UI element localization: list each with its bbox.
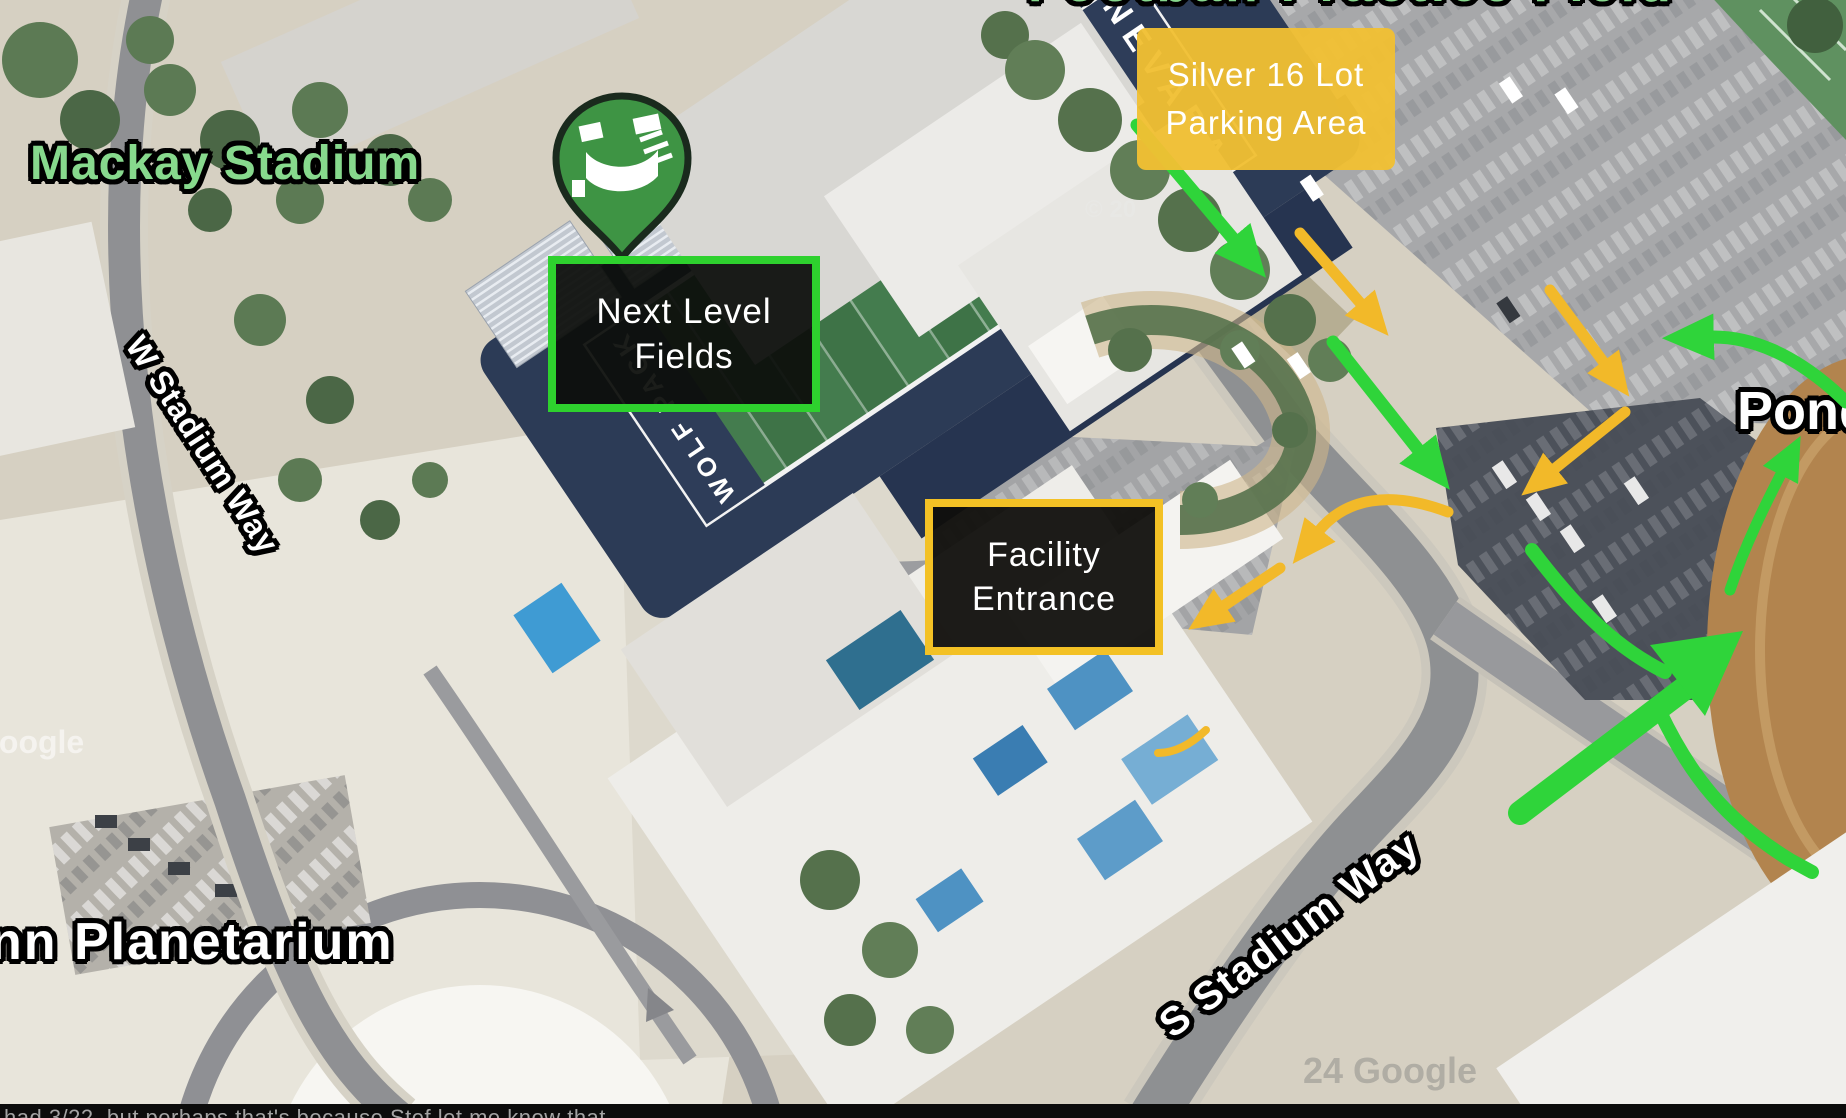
callout-line: Entrance — [972, 577, 1116, 621]
green-curve-join — [1532, 550, 1665, 672]
green-arrow-into-lot — [1710, 337, 1846, 402]
copyright-watermark-bottom: 24 Google — [1303, 1050, 1477, 1092]
green-arrow-big-shaft — [1520, 688, 1685, 813]
next-level-fields-callout: Next Level Fields — [548, 256, 820, 412]
green-arrow-road-mid — [1333, 342, 1420, 452]
bottom-text-partial: had 3/22, but perhaps that's because Ste… — [4, 1105, 1846, 1118]
google-watermark-left: Google — [0, 724, 84, 761]
green-route-arrows — [1137, 125, 1846, 872]
yellow-arrow-lot-exit — [1553, 412, 1625, 470]
callout-line: Next Level — [596, 289, 771, 335]
copyright-watermark-road: © 20 — [1085, 196, 1136, 224]
green-curve-tail — [1660, 712, 1812, 872]
silver-16-lot-callout: Silver 16 Lot Parking Area — [1137, 28, 1395, 170]
yellow-curve-small — [1158, 730, 1206, 753]
annotation-overlay — [0, 0, 1846, 1118]
yellow-route-arrows — [1158, 233, 1625, 753]
facility-entrance-callout: Facility Entrance — [925, 499, 1163, 655]
yellow-arrow-to-entrance — [1222, 568, 1280, 607]
green-arrow-up-pond — [1730, 472, 1782, 590]
bottom-text-bar: had 3/22, but perhaps that's because Ste… — [0, 1104, 1846, 1118]
callout-line: Fields — [634, 334, 733, 380]
yellow-arrow-lot-aisle-2 — [1550, 290, 1605, 364]
callout-line: Parking Area — [1166, 99, 1367, 147]
yellow-arrow-lot-aisle-1 — [1300, 233, 1362, 305]
next-level-fields-pin — [556, 96, 688, 258]
callout-line: Facility — [987, 533, 1101, 577]
annotated-map-screenshot: { "window": { "bottom_bar_text": "had 3/… — [0, 0, 1846, 1118]
yellow-arrow-turn-curve — [1318, 500, 1448, 532]
callout-line: Silver 16 Lot — [1168, 51, 1364, 99]
